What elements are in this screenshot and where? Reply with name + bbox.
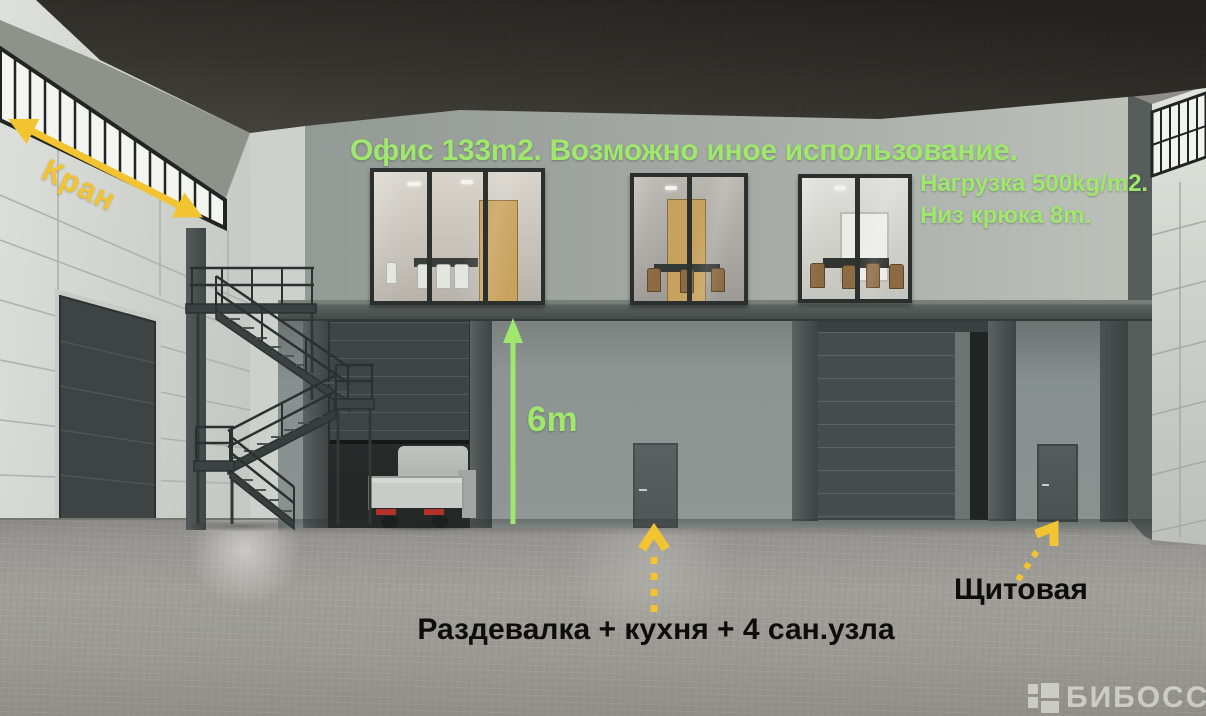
watermark: БИБОСС (1028, 681, 1206, 715)
logo-block (1041, 701, 1059, 713)
biboss-logo-icon (1028, 683, 1059, 714)
warehouse-render: Кран Офис 133m2. Возможно иное использов… (0, 0, 1206, 716)
watermark-label: БИБОСС (1066, 681, 1206, 715)
office-load-label: Нагрузка 500kg/m2. (920, 170, 1148, 198)
height-arrow (503, 318, 523, 524)
logo-block (1028, 684, 1038, 694)
annotation-arrows (0, 0, 1206, 716)
rooms-dotted-arrow (642, 531, 666, 612)
panel-room-label: Щитовая (954, 573, 1088, 607)
logo-block (1041, 683, 1059, 698)
office-hook-label: Низ крюка 8m. (920, 202, 1091, 230)
rooms-label: Раздевалка + кухня + 4 сан.узла (398, 613, 914, 647)
height-label: 6m (527, 400, 578, 440)
office-title-label: Офис 133m2. Возможно иное использование. (350, 134, 1018, 168)
logo-block (1028, 697, 1038, 708)
